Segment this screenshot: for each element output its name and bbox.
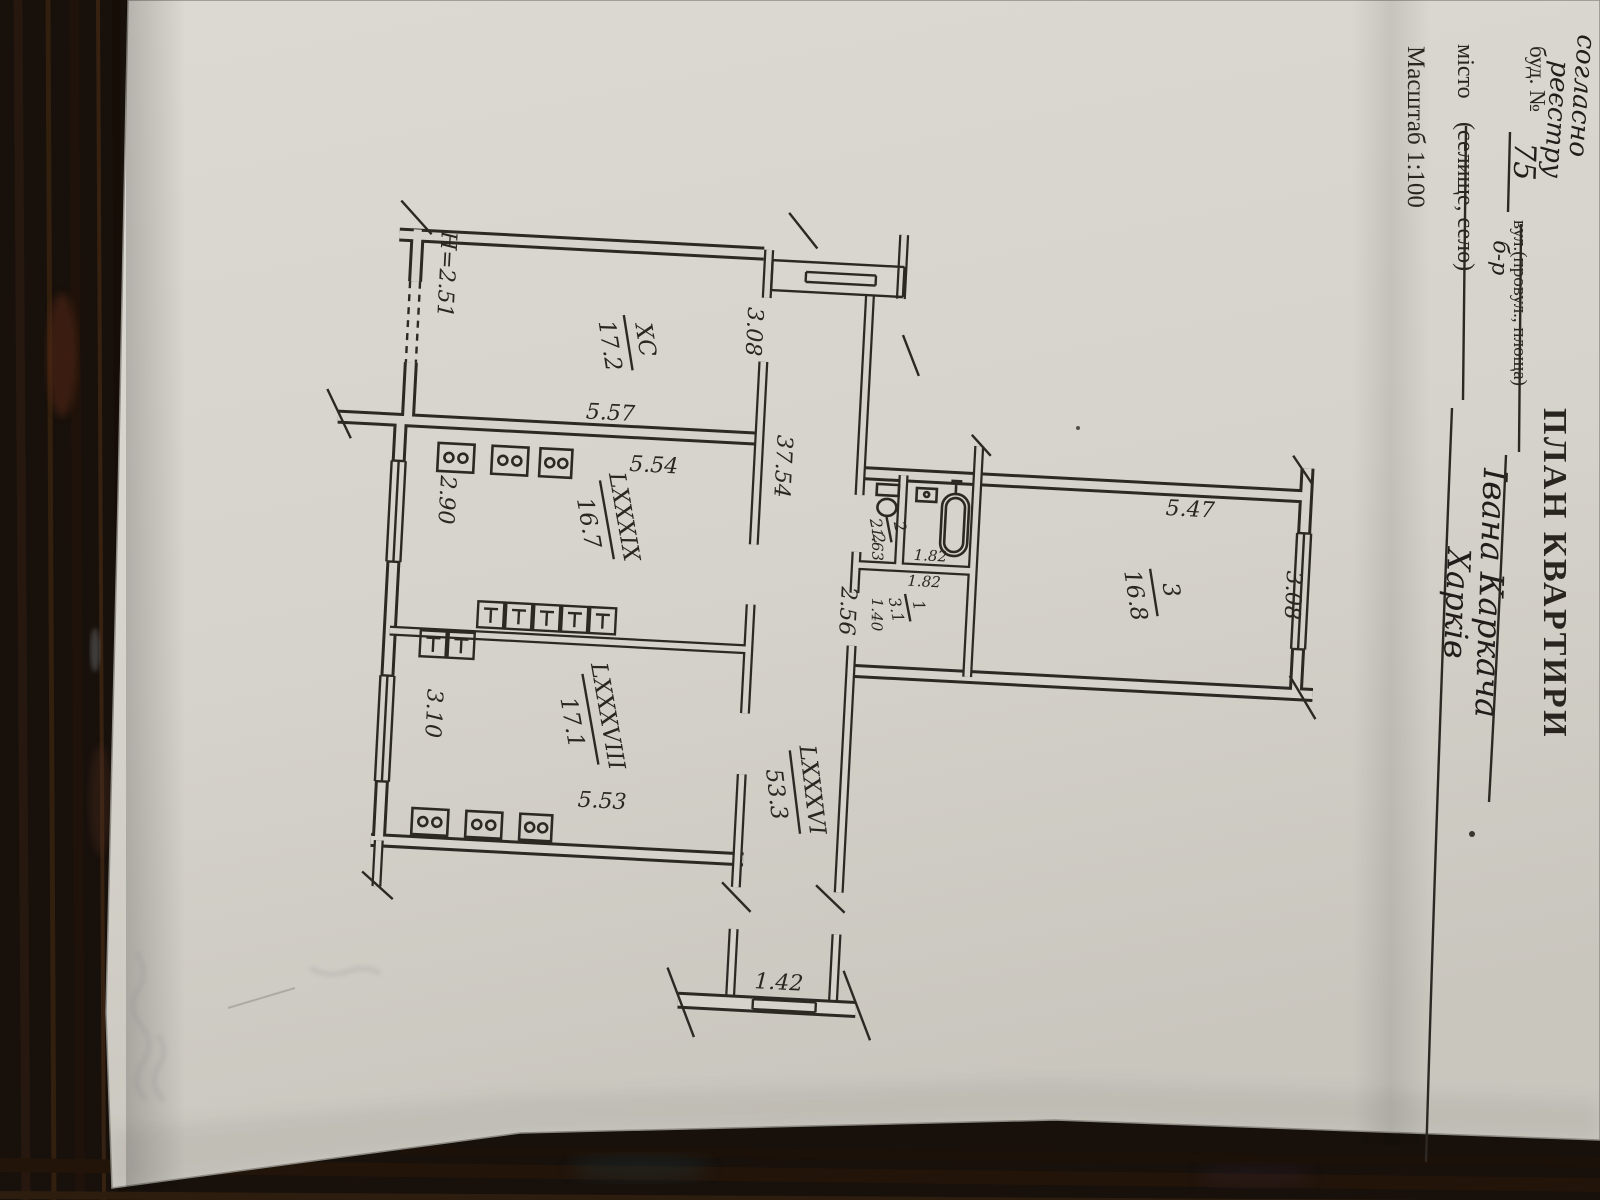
dim-wc-depth: 1.82 <box>913 546 947 566</box>
dim-bath-width: 1.40 <box>868 598 887 632</box>
building-number-value: 75 <box>1506 142 1542 181</box>
dim-kitchen-width: 5.57 <box>585 400 635 428</box>
wood-smudge <box>1197 1165 1313 1187</box>
dim-kitchen-depth: 3.08 <box>740 307 768 357</box>
ceiling-height-note: H=2.51 <box>431 229 461 318</box>
wood-smudge <box>47 293 77 417</box>
wood-speck <box>90 628 100 672</box>
dim-corridor-length: 37.54 <box>768 434 796 498</box>
wood-smudge <box>570 1155 710 1181</box>
dim-bath-depth: 1.82 <box>907 572 941 592</box>
dim-corridor-width: 2.56 <box>833 585 861 636</box>
photo-of-floor-plan-document: 5.57 5.54 3.08 H=2.51 2.90 37.54 2.56 3.… <box>0 0 1600 1200</box>
dim-bottom-window: 3.10 <box>419 688 447 738</box>
scale-label: Масштаб 1:100 <box>1402 46 1429 208</box>
dim-corridor-end-window: 1.42 <box>754 969 804 997</box>
ink-speck <box>1469 831 1475 837</box>
building-number-label: буд. № <box>1525 46 1550 112</box>
dim-mid-window: 2.90 <box>432 474 460 525</box>
page-title: ПЛАН КВАРТИРИ <box>1536 408 1573 739</box>
document-photo: 5.57 5.54 3.08 H=2.51 2.90 37.54 2.56 3.… <box>0 0 1600 1200</box>
dim-right-room-width: 5.47 <box>1165 496 1215 524</box>
dim-mid-room-width: 5.54 <box>629 452 679 480</box>
room-number: XC <box>629 319 660 359</box>
street-type-handwritten: б-р <box>1486 240 1513 276</box>
city-name-handwritten: Харків <box>1436 545 1478 660</box>
city-label: місто <box>1452 44 1478 99</box>
ink-speck <box>1076 426 1080 430</box>
dim-bottom-room-width: 5.53 <box>577 788 627 816</box>
wood-smudge <box>89 745 111 855</box>
dim-right-room-depth: 3.08 <box>1279 570 1307 620</box>
